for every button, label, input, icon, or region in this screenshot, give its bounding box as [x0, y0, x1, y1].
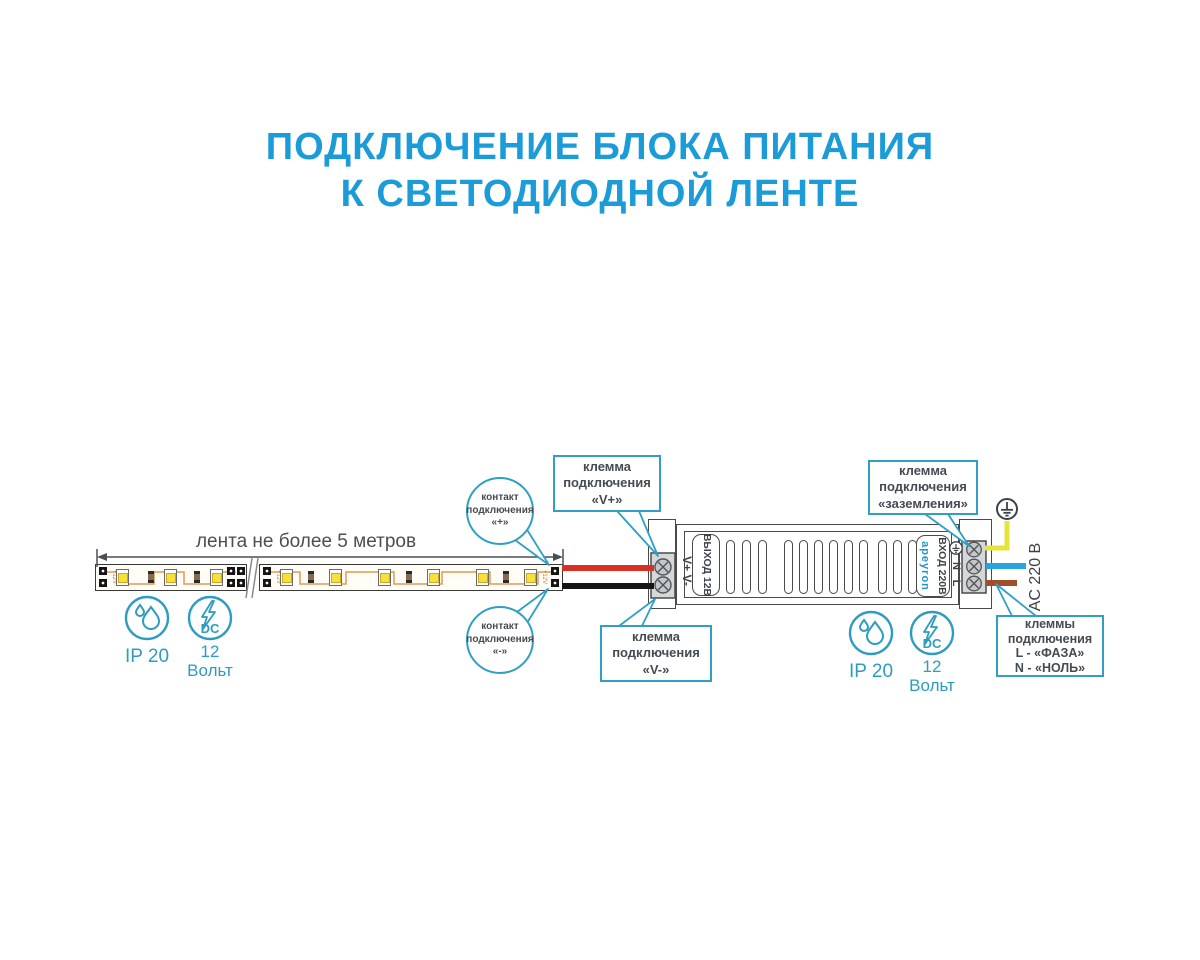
pointer-terminal-vplus — [617, 511, 658, 556]
dc-badge: DC — [908, 609, 956, 657]
callout-contact-plus: контакт подключения «+» — [466, 477, 534, 545]
voltage-unit-label: Вольт — [170, 661, 250, 680]
dimension-arrow-left — [97, 553, 107, 561]
ground-symbol — [995, 497, 1019, 521]
callout-terminal-vplus-text: клемма подключения «V+» — [563, 459, 651, 509]
strip-break-marks — [246, 558, 258, 598]
dc-icon-text: DC — [201, 621, 220, 636]
diagram-canvas: ПОДКЛЮЧЕНИЕ БЛОКА ПИТАНИЯ К СВЕТОДИОДНОЙ… — [0, 0, 1200, 960]
ac-voltage-label: AC 220 В — [1027, 532, 1045, 622]
voltage-value-label: 12 — [170, 642, 250, 661]
pointer-terminal-vminus — [619, 599, 655, 626]
dimension-arrow-right — [553, 553, 563, 561]
title-line2: К СВЕТОДИОДНОЙ ЛЕНТЕ — [0, 171, 1200, 218]
voltage-unit-label: Вольт — [892, 676, 972, 695]
dc-badge: DC — [186, 594, 234, 642]
page-title: ПОДКЛЮЧЕНИЕ БЛОКА ПИТАНИЯ К СВЕТОДИОДНОЙ… — [0, 124, 1200, 218]
callout-terminal-mains: клеммы подключения L - «ФАЗА» N - «НОЛЬ» — [996, 615, 1104, 677]
callout-contact-plus-text: контакт подключения «+» — [466, 492, 533, 530]
dc-icon-text: DC — [923, 636, 942, 651]
title-line1: ПОДКЛЮЧЕНИЕ БЛОКА ПИТАНИЯ — [0, 124, 1200, 171]
voltage-value-label: 12 — [892, 657, 972, 676]
callout-terminal-ground: клемма подключения «заземления» — [868, 460, 978, 515]
callout-contact-minus-text: контакт подключения «-» — [466, 621, 533, 659]
pointer-terminal-ground — [925, 514, 969, 546]
callout-contact-minus: контакт подключения «-» — [466, 606, 534, 674]
callout-terminal-vplus: клемма подключения «V+» — [553, 455, 661, 512]
wire-ground-yellow — [985, 521, 1007, 548]
strip-length-label: лента не более 5 метров — [156, 531, 456, 553]
callout-terminal-vminus: клемма подключения «V-» — [600, 625, 712, 682]
callout-terminal-mains-text: клеммы подключения L - «ФАЗА» N - «НОЛЬ» — [1008, 617, 1092, 675]
callout-terminal-vminus-text: клемма подключения «V-» — [612, 629, 700, 679]
callout-terminal-ground-text: клемма подключения «заземления» — [878, 463, 968, 513]
ip-rating-badge — [123, 594, 171, 642]
ip-rating-badge — [847, 609, 895, 657]
